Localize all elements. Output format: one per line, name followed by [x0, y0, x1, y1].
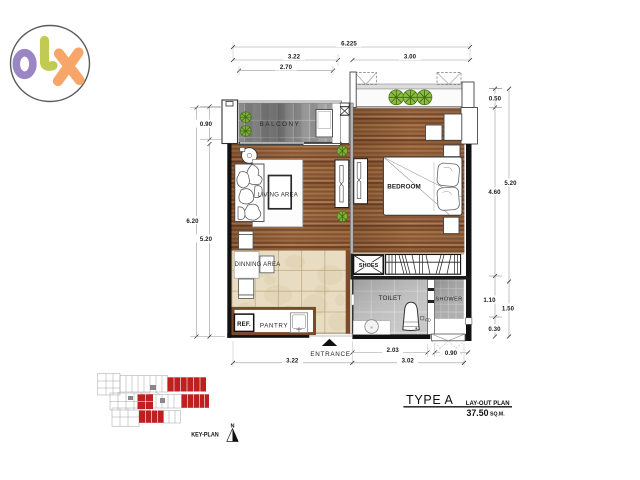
svg-text:0.50: 0.50 [489, 95, 502, 102]
svg-text:5.20: 5.20 [200, 236, 213, 243]
svg-text:6.20: 6.20 [186, 218, 199, 225]
svg-text:SHOES: SHOES [359, 263, 379, 269]
svg-text:KEY-PLAN: KEY-PLAN [191, 432, 219, 439]
svg-text:5.20: 5.20 [504, 180, 517, 187]
svg-text:BEDROOM: BEDROOM [387, 183, 421, 190]
svg-text:6.225: 6.225 [341, 41, 357, 48]
svg-text:SHOWER: SHOWER [435, 297, 462, 303]
svg-text:0.90: 0.90 [445, 350, 458, 357]
svg-text:1.10: 1.10 [483, 297, 496, 304]
svg-text:37.50: 37.50 [467, 408, 489, 418]
svg-text:BALCONY: BALCONY [260, 121, 301, 128]
svg-text:3.22: 3.22 [288, 54, 301, 61]
svg-text:2.70: 2.70 [280, 64, 293, 71]
svg-text:REF.: REF. [237, 322, 251, 328]
svg-text:0.90: 0.90 [200, 121, 213, 128]
svg-text:SQ.M.: SQ.M. [490, 412, 505, 418]
svg-text:PANTRY: PANTRY [260, 322, 288, 329]
svg-text:3.22: 3.22 [286, 357, 299, 364]
svg-text:LAY-OUT PLAN: LAY-OUT PLAN [466, 401, 510, 407]
svg-text:3.00: 3.00 [404, 54, 417, 61]
svg-text:A: A [445, 393, 454, 407]
svg-text:FD: FD [425, 318, 431, 323]
svg-text:ENTRANCE: ENTRANCE [310, 351, 350, 358]
svg-text:LIVING AREA: LIVING AREA [258, 192, 298, 198]
svg-text:3.02: 3.02 [402, 357, 415, 364]
svg-text:0.30: 0.30 [488, 326, 501, 333]
svg-text:TYPE: TYPE [406, 393, 441, 407]
svg-text:2.03: 2.03 [387, 347, 400, 354]
svg-text:1.50: 1.50 [502, 305, 515, 312]
svg-text:TOILET: TOILET [379, 295, 402, 302]
svg-text:4.60: 4.60 [488, 189, 501, 196]
svg-text:DINNING AREA: DINNING AREA [234, 262, 280, 268]
